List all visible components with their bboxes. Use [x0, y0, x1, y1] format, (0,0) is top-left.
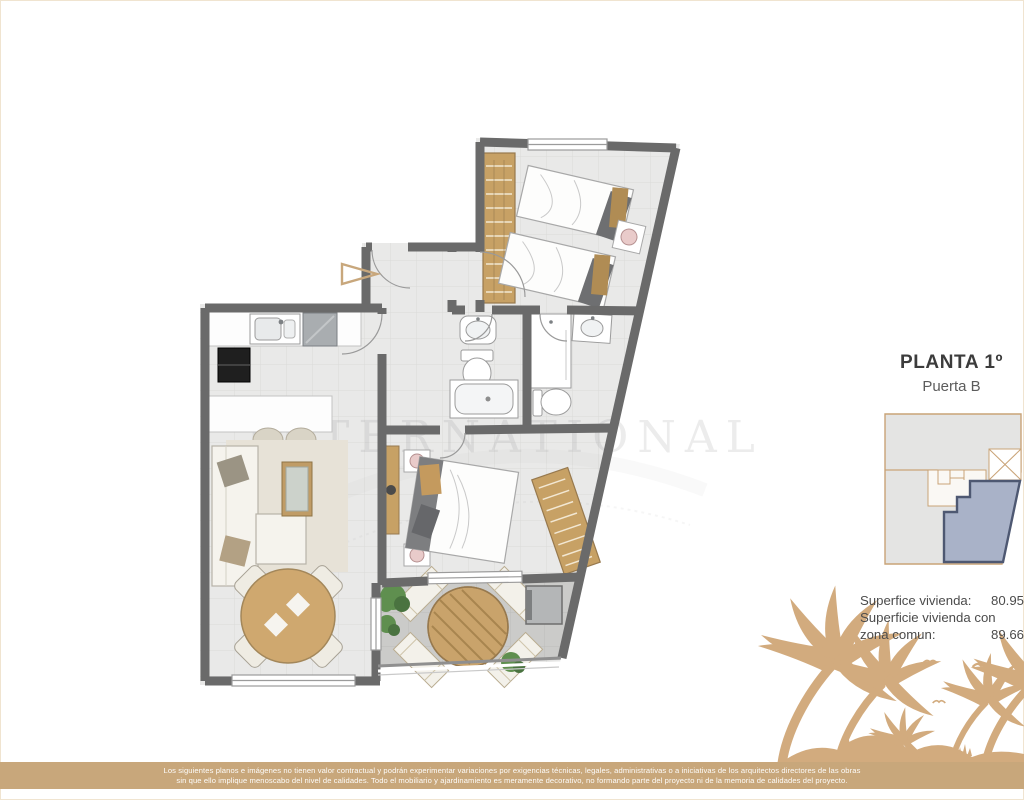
dining-table [241, 569, 335, 663]
area-label: Superfice vivienda: [860, 592, 971, 609]
disclaimer-line-2: sin que ello implique menoscabo del nive… [0, 776, 1024, 786]
area-value: 80.95 [991, 592, 1024, 609]
plan-subtitle: Puerta B [869, 378, 1024, 395]
double-bed [405, 457, 518, 564]
key-plan [885, 414, 1021, 564]
nightstand [612, 220, 646, 254]
area-row: Superficie vivienda con [860, 609, 1024, 626]
plan-title: PLANTA 1º [869, 352, 1024, 374]
area-label: zona comun: [860, 626, 936, 643]
area-row: Superfice vivienda: 80.95 [860, 592, 1024, 609]
plan-card: PLANTA 1º Puerta B [869, 352, 1024, 395]
apartment-floorplan: INTERNATIONAL [200, 138, 764, 688]
bird-icon [933, 701, 946, 703]
dining-area [232, 563, 345, 670]
kitchen-sink [250, 314, 300, 344]
grass [958, 744, 972, 756]
coffee-table [282, 462, 312, 516]
living-room [212, 440, 348, 586]
kitchen-island [208, 396, 332, 432]
area-value: 89.66 [991, 626, 1024, 643]
area-row: zona comun: 89.66 [860, 626, 1024, 643]
area-label: Superficie vivienda con [860, 609, 996, 626]
vanity [531, 314, 571, 388]
area-info: Superfice vivienda: 80.95 Superficie viv… [860, 592, 1024, 643]
storage-unit [526, 586, 562, 624]
disclaimer-line-1: Los siguientes planos e imágenes no tien… [0, 766, 1024, 776]
tv [386, 485, 396, 495]
disclaimer-band: Los siguientes planos e imágenes no tien… [0, 762, 1024, 789]
terrace-table [428, 587, 508, 667]
floorplan-graphic: INTERNATIONAL [0, 0, 1024, 800]
